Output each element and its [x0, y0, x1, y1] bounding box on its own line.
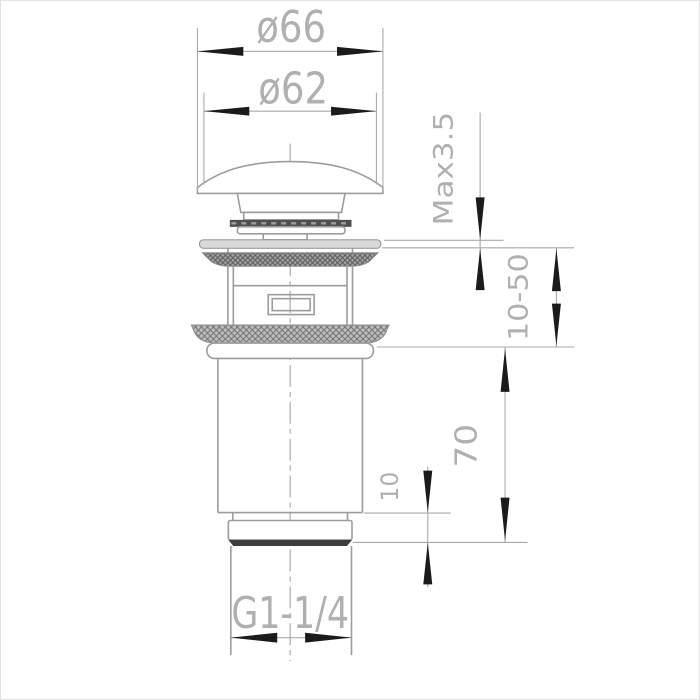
technical-drawing: ø66 ø62 Max3.5 10-50 70: [1, 1, 699, 699]
cap-dome: [197, 162, 382, 194]
fixture-geometry: [191, 144, 388, 662]
dim-label-10: 10: [376, 472, 404, 502]
arrowhead-down: [423, 471, 432, 513]
arrowhead-left: [204, 107, 249, 116]
arrowhead-up: [501, 349, 510, 392]
overflow-hole-outer: [268, 295, 314, 315]
arrowhead-right: [331, 107, 376, 116]
dimension-thread: G1-1/4: [231, 588, 352, 642]
dim-label-dia66: ø66: [256, 2, 326, 53]
dim-label-70: 70: [450, 424, 485, 468]
flange-bead-ring: [207, 343, 374, 358]
dim-label-max35: Max3.5: [429, 112, 460, 226]
dim-label-dia62: ø62: [258, 64, 328, 115]
dimension-max35: Max3.5: [382, 112, 574, 290]
plate-connector: [263, 234, 307, 240]
dimension-10: 10: [364, 467, 451, 588]
seal-plate: [237, 227, 345, 234]
cap-stem-lower: [244, 212, 339, 219]
arrowhead-left: [197, 47, 243, 56]
arrowhead-down: [501, 498, 510, 541]
top-washer: [199, 240, 380, 248]
collar-ring: [228, 521, 352, 540]
dim-label-thread: G1-1/4: [231, 588, 349, 639]
arrowhead-down: [476, 197, 485, 239]
arrowhead-up: [552, 249, 561, 291]
rubber-gasket: [202, 253, 377, 266]
knurled-flange: [191, 325, 388, 343]
dim-label-10-50: 10-50: [503, 253, 534, 341]
drawing-canvas: ø66 ø62 Max3.5 10-50 70: [0, 0, 700, 700]
overflow-hole-inner: [272, 299, 310, 311]
collar-dark-band: [228, 540, 352, 546]
arrowhead-up: [476, 248, 485, 290]
arrowhead-right: [337, 47, 383, 56]
dimension-10-50: 10-50: [377, 248, 574, 347]
arrowhead-down: [552, 304, 561, 346]
arrowhead-up: [423, 542, 432, 584]
cap-stem-upper: [237, 193, 345, 212]
